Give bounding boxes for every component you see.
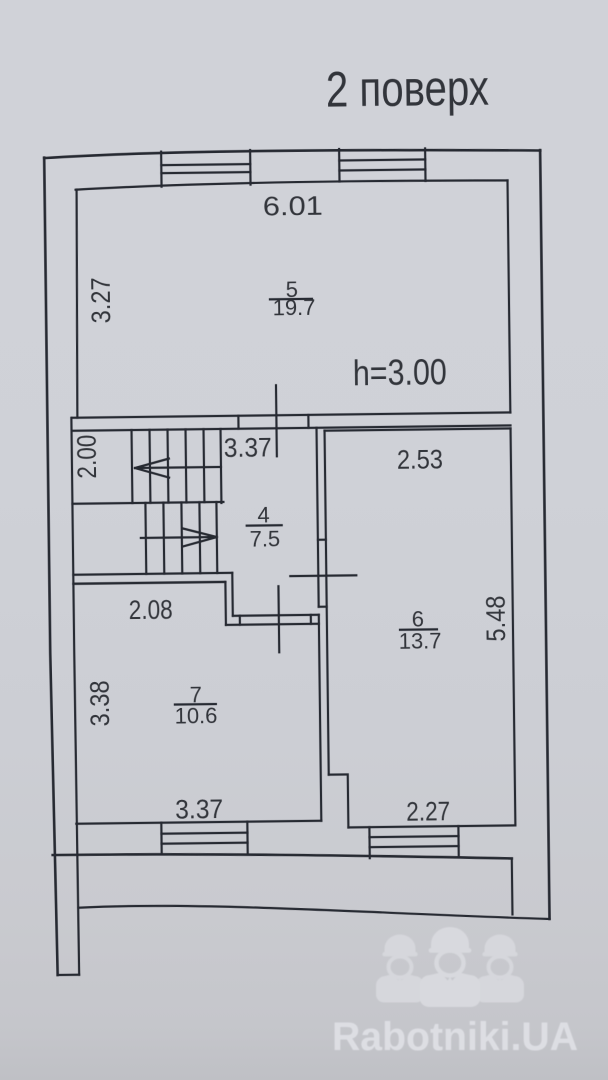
svg-text:Rabotniki.UA: Rabotniki.UA [332,1015,578,1059]
svg-text:2.27: 2.27 [406,796,450,827]
svg-text:6.01: 6.01 [263,191,323,222]
svg-text:2.08: 2.08 [129,595,173,626]
svg-text:13.7: 13.7 [399,628,442,654]
svg-text:19.7: 19.7 [272,295,315,321]
svg-text:2 поверх: 2 поверх [326,60,490,118]
svg-text:10.6: 10.6 [174,703,217,729]
svg-text:5.48: 5.48 [481,595,512,641]
svg-text:2.00: 2.00 [72,434,103,478]
svg-text:7.5: 7.5 [249,526,280,551]
svg-text:3.38: 3.38 [85,680,116,726]
svg-text:h=3.00: h=3.00 [353,351,447,393]
svg-text:3.37: 3.37 [175,794,223,825]
svg-text:3.37: 3.37 [224,432,272,463]
svg-text:4: 4 [257,502,270,527]
svg-text:2.53: 2.53 [397,444,443,475]
svg-text:3.27: 3.27 [86,277,117,323]
